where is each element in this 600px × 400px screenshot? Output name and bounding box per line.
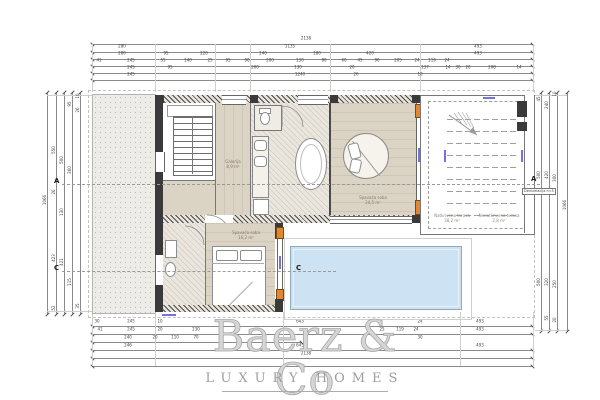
partition-line xyxy=(205,223,206,305)
door-label-mark xyxy=(162,314,176,316)
dim-label: 10 xyxy=(417,73,422,77)
dim-label: 420 xyxy=(545,171,549,179)
partition-line xyxy=(250,103,251,215)
garden-area xyxy=(92,94,156,314)
bed-sheet-line xyxy=(212,263,264,264)
room-label-master: Spavaća soba 24,5 m² xyxy=(359,195,387,205)
dim-line xyxy=(549,92,550,332)
dim-line xyxy=(92,44,533,45)
room-label-open-terrace: Nenatkrivena terasa 2,8 m² xyxy=(479,213,520,223)
dim-label: 421 xyxy=(60,258,64,266)
dim-line xyxy=(92,59,533,60)
dim-label: 245 xyxy=(127,73,135,77)
extension-line xyxy=(533,312,534,366)
dim-label: 95 xyxy=(163,52,168,56)
washer-icon xyxy=(253,199,269,215)
wall-pillar xyxy=(412,215,420,223)
staircase xyxy=(173,116,213,176)
room-label-covered-terrace: Natkrivena terasa 38,2 m² xyxy=(434,213,470,223)
dim-label: 30 xyxy=(455,66,460,70)
dim-label: 130 xyxy=(60,208,64,216)
dim-label: 280 xyxy=(118,45,126,49)
extension-line xyxy=(533,44,534,92)
dim-label: 24 xyxy=(414,59,419,63)
dim-label: 20 xyxy=(349,66,354,70)
pillow-icon xyxy=(240,250,262,261)
dim-label: 245 xyxy=(127,59,135,63)
dim-label: 245 xyxy=(127,320,135,324)
dim-label: 500 xyxy=(537,171,541,179)
section-line-a xyxy=(62,184,540,185)
extension-line xyxy=(92,44,93,92)
dim-label: 41 xyxy=(97,328,102,332)
dim-label: 10 xyxy=(553,91,557,96)
dim-label: 300 xyxy=(553,174,557,182)
dim-line xyxy=(80,92,81,315)
dim-label: 130 xyxy=(294,66,302,70)
extension-line xyxy=(535,330,567,331)
section-marker-c-pool: C xyxy=(296,265,301,272)
dim-label: 240 xyxy=(124,336,132,340)
dim-label: 200 xyxy=(251,66,259,70)
dim-line xyxy=(47,92,48,315)
watermark-underline xyxy=(222,391,388,392)
dim-label: 80 xyxy=(321,59,326,63)
section-marker-a-left: A xyxy=(54,178,59,185)
dim-label: 240 xyxy=(545,101,549,109)
extension-line xyxy=(155,44,156,92)
dim-label: 240 xyxy=(259,52,267,56)
section-marker-c-left: C xyxy=(54,265,59,272)
dim-label: 246 xyxy=(124,344,132,348)
wall-pillar xyxy=(250,95,258,103)
window xyxy=(330,216,412,224)
room-label-bedroom2: Spavaća soba 16,2 m² xyxy=(232,230,260,240)
dim-line xyxy=(567,92,568,332)
toilet-icon xyxy=(260,112,270,125)
slope-arrow-icon xyxy=(446,110,482,140)
door-label-mark xyxy=(521,150,523,162)
door-arc xyxy=(184,225,205,246)
room-area-text: 8,9 m² xyxy=(225,164,240,169)
sink-icon xyxy=(254,140,267,151)
window xyxy=(155,152,165,172)
dim-line xyxy=(92,80,533,81)
bathtub-inner xyxy=(300,144,322,184)
dim-label: 1135 xyxy=(285,45,295,49)
dim-label: 26 xyxy=(52,189,56,194)
partition-line xyxy=(163,180,215,181)
dim-line xyxy=(557,92,558,332)
wall-pillar xyxy=(155,305,163,312)
dim-label: 208 xyxy=(488,66,496,70)
dim-line xyxy=(56,92,57,315)
dim-label: 55 xyxy=(545,315,549,320)
dim-line xyxy=(541,92,542,332)
dim-label: 45 xyxy=(357,59,362,63)
dim-label: 1240 xyxy=(295,73,305,77)
wall-pillar xyxy=(517,101,527,117)
dim-label: 493 xyxy=(476,320,484,324)
dim-label: 95 xyxy=(225,59,230,63)
level-note-box: Denivelacija h=5 xyxy=(522,188,556,195)
door-jamb xyxy=(276,227,284,239)
dim-label: 250 xyxy=(553,280,557,288)
partition-line xyxy=(215,103,216,215)
extension-line xyxy=(330,44,331,92)
dim-label: 60 xyxy=(341,59,346,63)
dim-label: 24 xyxy=(444,59,449,63)
wall-pillar xyxy=(330,95,338,103)
dim-label: 360 xyxy=(68,166,72,174)
dim-line xyxy=(92,73,533,74)
dim-label: 10 xyxy=(157,320,162,324)
room-area-text: 38,2 m² xyxy=(434,218,470,223)
dim-label: 41 xyxy=(96,59,101,63)
dim-label: 493 xyxy=(474,45,482,49)
sink-icon xyxy=(165,240,177,258)
dim-label: 30 xyxy=(94,320,99,324)
dim-label: 493 xyxy=(476,344,484,348)
pool-inner-line xyxy=(293,249,459,307)
dim-label: 45 xyxy=(537,96,541,101)
wall-pillar xyxy=(517,122,527,131)
extension-line xyxy=(47,311,92,312)
window xyxy=(298,95,328,105)
dim-line xyxy=(64,92,65,315)
dim-label: 20 xyxy=(152,336,157,340)
dim-label: 90 xyxy=(374,59,379,63)
room-area-text: 16,2 m² xyxy=(232,235,260,240)
dim-label: 26 xyxy=(76,107,80,112)
dim-label: 1066 xyxy=(563,200,567,210)
dim-label: 119 xyxy=(428,59,436,63)
dim-label: 20 xyxy=(465,66,470,70)
dim-label: 25 xyxy=(207,59,212,63)
dim-label: 420 xyxy=(366,52,374,56)
toilet-icon xyxy=(165,262,176,277)
dim-label: 180 xyxy=(313,52,321,56)
dim-label: 2138 xyxy=(301,37,311,41)
dim-line xyxy=(72,92,73,315)
dim-label: 20 xyxy=(553,317,557,322)
room-area-text: 2,8 m² xyxy=(479,218,520,223)
wall-pillar xyxy=(155,95,164,103)
window xyxy=(222,95,246,105)
dim-label: 200 xyxy=(266,59,274,63)
dim-label: 220 xyxy=(200,52,208,56)
wall-pillar xyxy=(275,305,283,312)
dim-label: 493 xyxy=(476,328,484,332)
dim-label: 140 xyxy=(184,59,192,63)
watermark-title: Baerz & Co xyxy=(175,316,435,400)
extension-line xyxy=(92,312,93,366)
section-line-c xyxy=(62,271,336,272)
dim-label: 550 xyxy=(52,146,56,154)
door-label-mark xyxy=(483,97,495,99)
partition-wall xyxy=(329,103,331,215)
dim-label: 1066 xyxy=(43,195,47,205)
dim-label: 245 xyxy=(127,66,135,70)
door-label-mark xyxy=(279,256,281,269)
section-marker-a-right: A xyxy=(531,176,536,183)
dim-label: 14 xyxy=(445,66,450,70)
room-label-gallery: Galerija 8,9 m² xyxy=(225,159,240,169)
dim-label: 10 xyxy=(76,93,80,98)
dim-label: 52 xyxy=(52,305,56,310)
dim-label: 26 xyxy=(353,73,358,77)
pillow-icon xyxy=(216,250,238,261)
dim-label: 320 xyxy=(545,278,549,286)
dim-label: 280 xyxy=(118,52,126,56)
dim-label: 90 xyxy=(244,59,249,63)
dim-label: 55 xyxy=(160,59,165,63)
dim-label: 493 xyxy=(474,52,482,56)
wall-pillar xyxy=(412,95,420,103)
door-arc xyxy=(281,105,305,129)
dim-label: 35 xyxy=(76,303,80,308)
sink-icon xyxy=(254,156,267,167)
watermark-subtitle: LUXURY HOMES xyxy=(190,371,420,386)
dim-label: 423 xyxy=(52,254,56,262)
extension-line xyxy=(47,95,92,96)
dim-label: 95 xyxy=(68,101,72,106)
extension-line xyxy=(215,44,216,92)
floor-plan-sheet: 2138280113549328095220240180420493412455… xyxy=(0,0,600,400)
dim-label: 137 xyxy=(421,66,429,70)
dim-label: 130 xyxy=(296,59,304,63)
room-area-text: 24,5 m² xyxy=(359,200,387,205)
dim-label: 205 xyxy=(394,59,402,63)
dim-label: 14 xyxy=(516,66,521,70)
dim-label: 500 xyxy=(537,278,541,286)
dim-label: 115 xyxy=(68,278,72,286)
dim-label: 95 xyxy=(167,66,172,70)
dim-label: 500 xyxy=(60,156,64,164)
dim-label: 245 xyxy=(127,328,135,332)
door-label-mark xyxy=(444,150,446,162)
exterior-wall-bottom-lower xyxy=(155,305,283,312)
dim-label: 20 xyxy=(157,328,162,332)
stair-walkline xyxy=(192,116,193,174)
extension-line xyxy=(460,312,461,366)
